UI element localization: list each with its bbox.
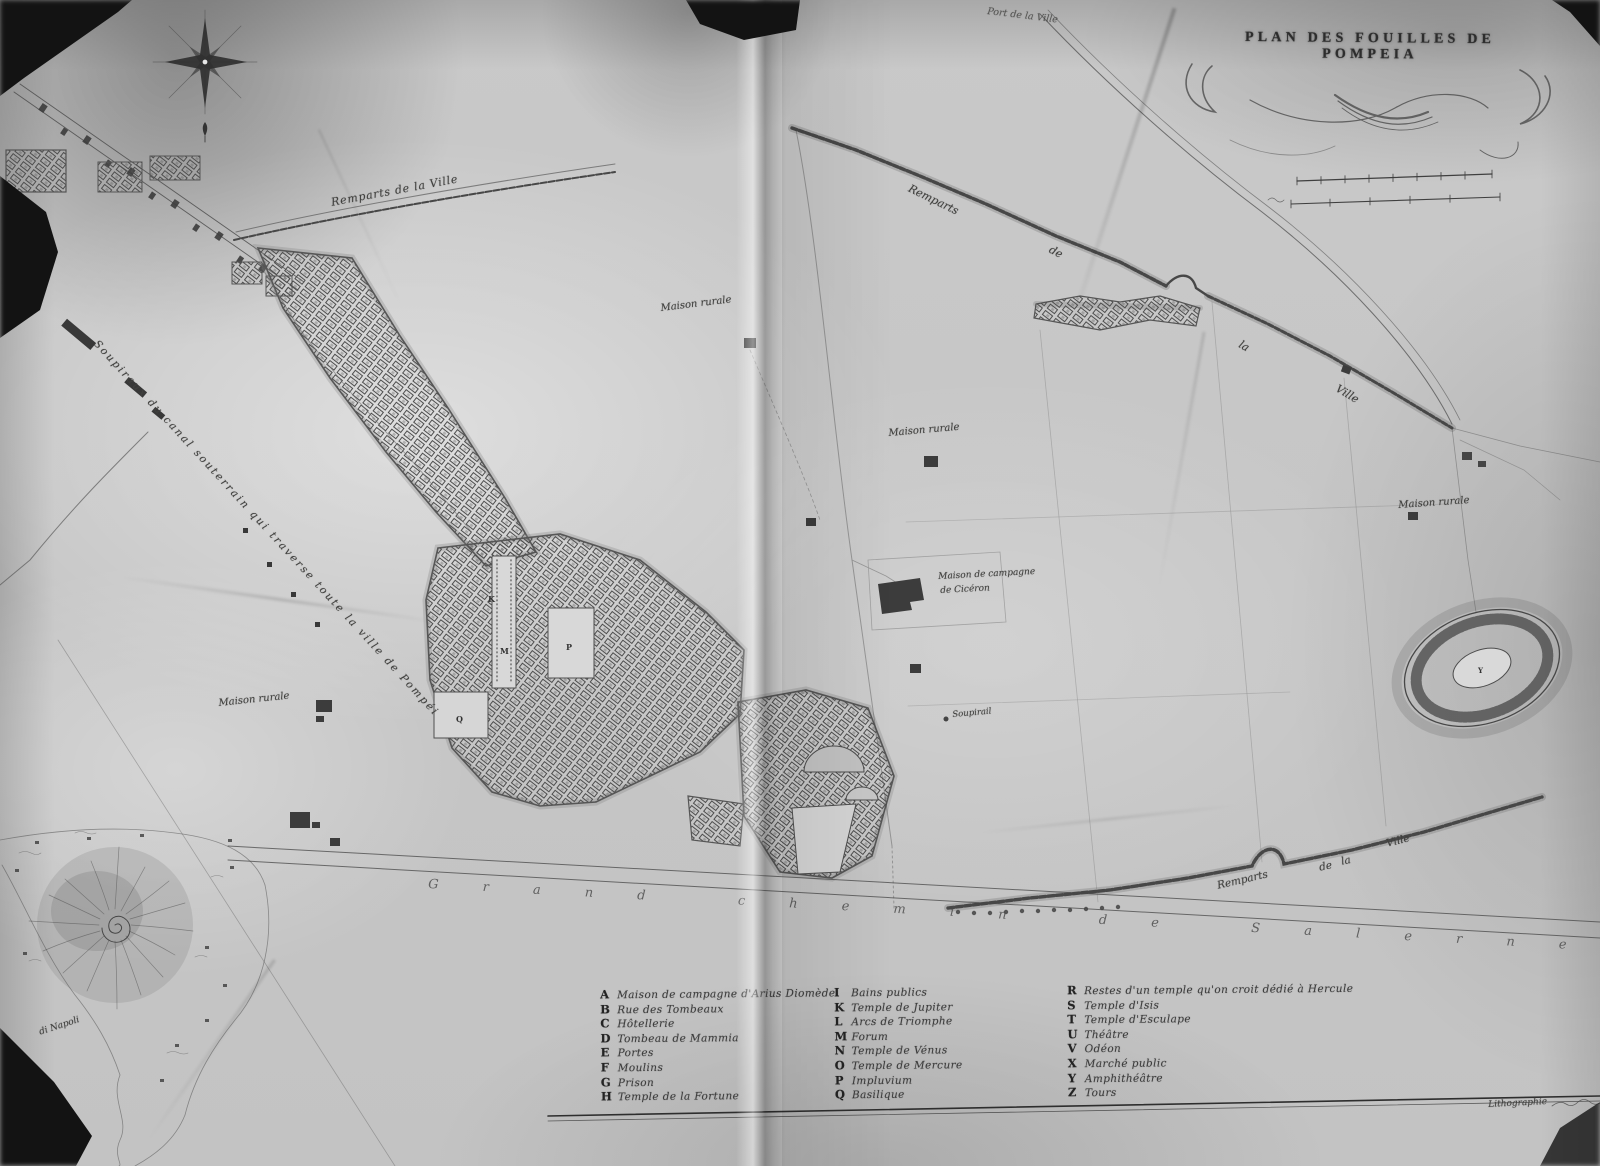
excavated-city (258, 248, 894, 878)
legend-label: Arcs de Triomphe (851, 1015, 952, 1028)
legend-row: PImpluvium (835, 1072, 963, 1088)
legend-row: IBains publics (834, 984, 962, 1000)
legend-key: Y (1068, 1071, 1085, 1085)
legend-label: Hôtellerie (617, 1018, 675, 1031)
plan-letter-k: K (488, 594, 496, 604)
legend-key: A (600, 987, 617, 1001)
legend-key: P (835, 1073, 852, 1087)
legend-column-3: RRestes d'un temple qu'on croit dédié à … (1067, 981, 1354, 1100)
legend-column-1: AMaison de campagne d'Arius Diomède BRue… (600, 985, 836, 1104)
legend-key: Q (835, 1087, 852, 1101)
legend-key: E (601, 1046, 618, 1060)
legend-key: G (601, 1075, 618, 1089)
rampart-south (948, 797, 1542, 915)
legend-key: V (1068, 1042, 1085, 1056)
legend-label: Forum (851, 1031, 888, 1043)
legend-label: Temple d'Isis (1084, 999, 1159, 1012)
legend-key: S (1067, 998, 1084, 1012)
legend-key: K (834, 1000, 851, 1014)
legend-row: OTemple de Mercure (835, 1057, 963, 1073)
legend-row: LArcs de Triomphe (834, 1013, 962, 1029)
compass-rose-icon (153, 10, 257, 142)
legend-label: Temple de la Fortune (618, 1090, 739, 1103)
legend-key: O (835, 1058, 852, 1072)
legend-row: MForum (834, 1028, 962, 1044)
credit-signature-squiggle (1552, 1100, 1600, 1107)
legend-label: Temple de Mercure (852, 1059, 963, 1072)
legend-key: L (834, 1014, 851, 1028)
plan-letter-p: P (566, 642, 572, 652)
legend-label: Rue des Tombeaux (617, 1003, 724, 1016)
legend-row: QBasilique (835, 1086, 963, 1102)
legend-label: Moulins (618, 1062, 664, 1074)
legend-label: Restes d'un temple qu'on croit dédié à H… (1084, 983, 1353, 997)
legend-label: Maison de campagne d'Arius Diomède (617, 987, 836, 1001)
legend-key: F (601, 1060, 618, 1074)
legend-label: Prison (618, 1076, 654, 1088)
canal-vents (61, 319, 320, 627)
legend-label: Portes (618, 1047, 654, 1059)
legend-row: NTemple de Vénus (835, 1043, 963, 1059)
plan-letter-y: Y (1477, 666, 1484, 675)
legend-label: Odéon (1085, 1043, 1122, 1055)
legend-key: Z (1068, 1085, 1085, 1099)
legend-column-2: IBains publics KTemple de Jupiter LArcs … (834, 984, 963, 1102)
label-remparts-sud-3: la (1340, 854, 1352, 868)
legend-key: C (600, 1016, 617, 1030)
legend-row: AMaison de campagne d'Arius Diomède (600, 985, 836, 1002)
legend-key: N (835, 1044, 852, 1058)
legend-label: Théâtre (1084, 1029, 1129, 1041)
legend-key: R (1067, 983, 1084, 997)
legend-key: D (600, 1031, 617, 1045)
south-pointer-icon (203, 122, 208, 142)
legend-label: Temple d'Esculape (1084, 1013, 1191, 1026)
cartouche-flourish (1186, 64, 1550, 158)
legend-key: I (834, 985, 851, 999)
legend-key: X (1068, 1056, 1085, 1070)
legend-label: Tombeau de Mammia (617, 1032, 738, 1045)
legend-label: Temple de Vénus (852, 1045, 948, 1058)
map-title: PLAN DES FOUILLES DE POMPEIA (1205, 30, 1535, 65)
legend-label: Temple de Jupiter (851, 1001, 953, 1014)
legend-label: Basilique (852, 1089, 905, 1101)
photo-of-antique-map: K M P Q Y Grand chemin de Salerne PLAN D… (0, 0, 1600, 1166)
scale-bar (1268, 170, 1500, 208)
legend-row: ZTours (1068, 1083, 1354, 1100)
legend-label: Marché public (1085, 1057, 1167, 1070)
legend-row: HTemple de la Fortune (601, 1087, 837, 1104)
plan-letter-m: M (500, 646, 509, 656)
legend-key: T (1067, 1012, 1084, 1026)
plan-letter-q: Q (456, 714, 463, 724)
legend-label: Tours (1085, 1087, 1117, 1099)
legend-key: H (601, 1089, 618, 1103)
legend-label: Impluvium (852, 1074, 913, 1087)
vesuvius-inset (0, 829, 269, 1166)
excavated-strip (1034, 296, 1200, 330)
road-northeast (1040, 10, 1600, 500)
legend-label: Bains publics (851, 987, 927, 1000)
legend-key: M (834, 1029, 851, 1043)
rampart-northeast (792, 128, 1452, 428)
rue-des-tombeaux (6, 84, 304, 296)
legend-key: B (600, 1002, 617, 1016)
legend-key: U (1067, 1027, 1084, 1041)
legend-label: Amphithéâtre (1085, 1072, 1163, 1085)
legend-row: KTemple de Jupiter (834, 999, 962, 1015)
